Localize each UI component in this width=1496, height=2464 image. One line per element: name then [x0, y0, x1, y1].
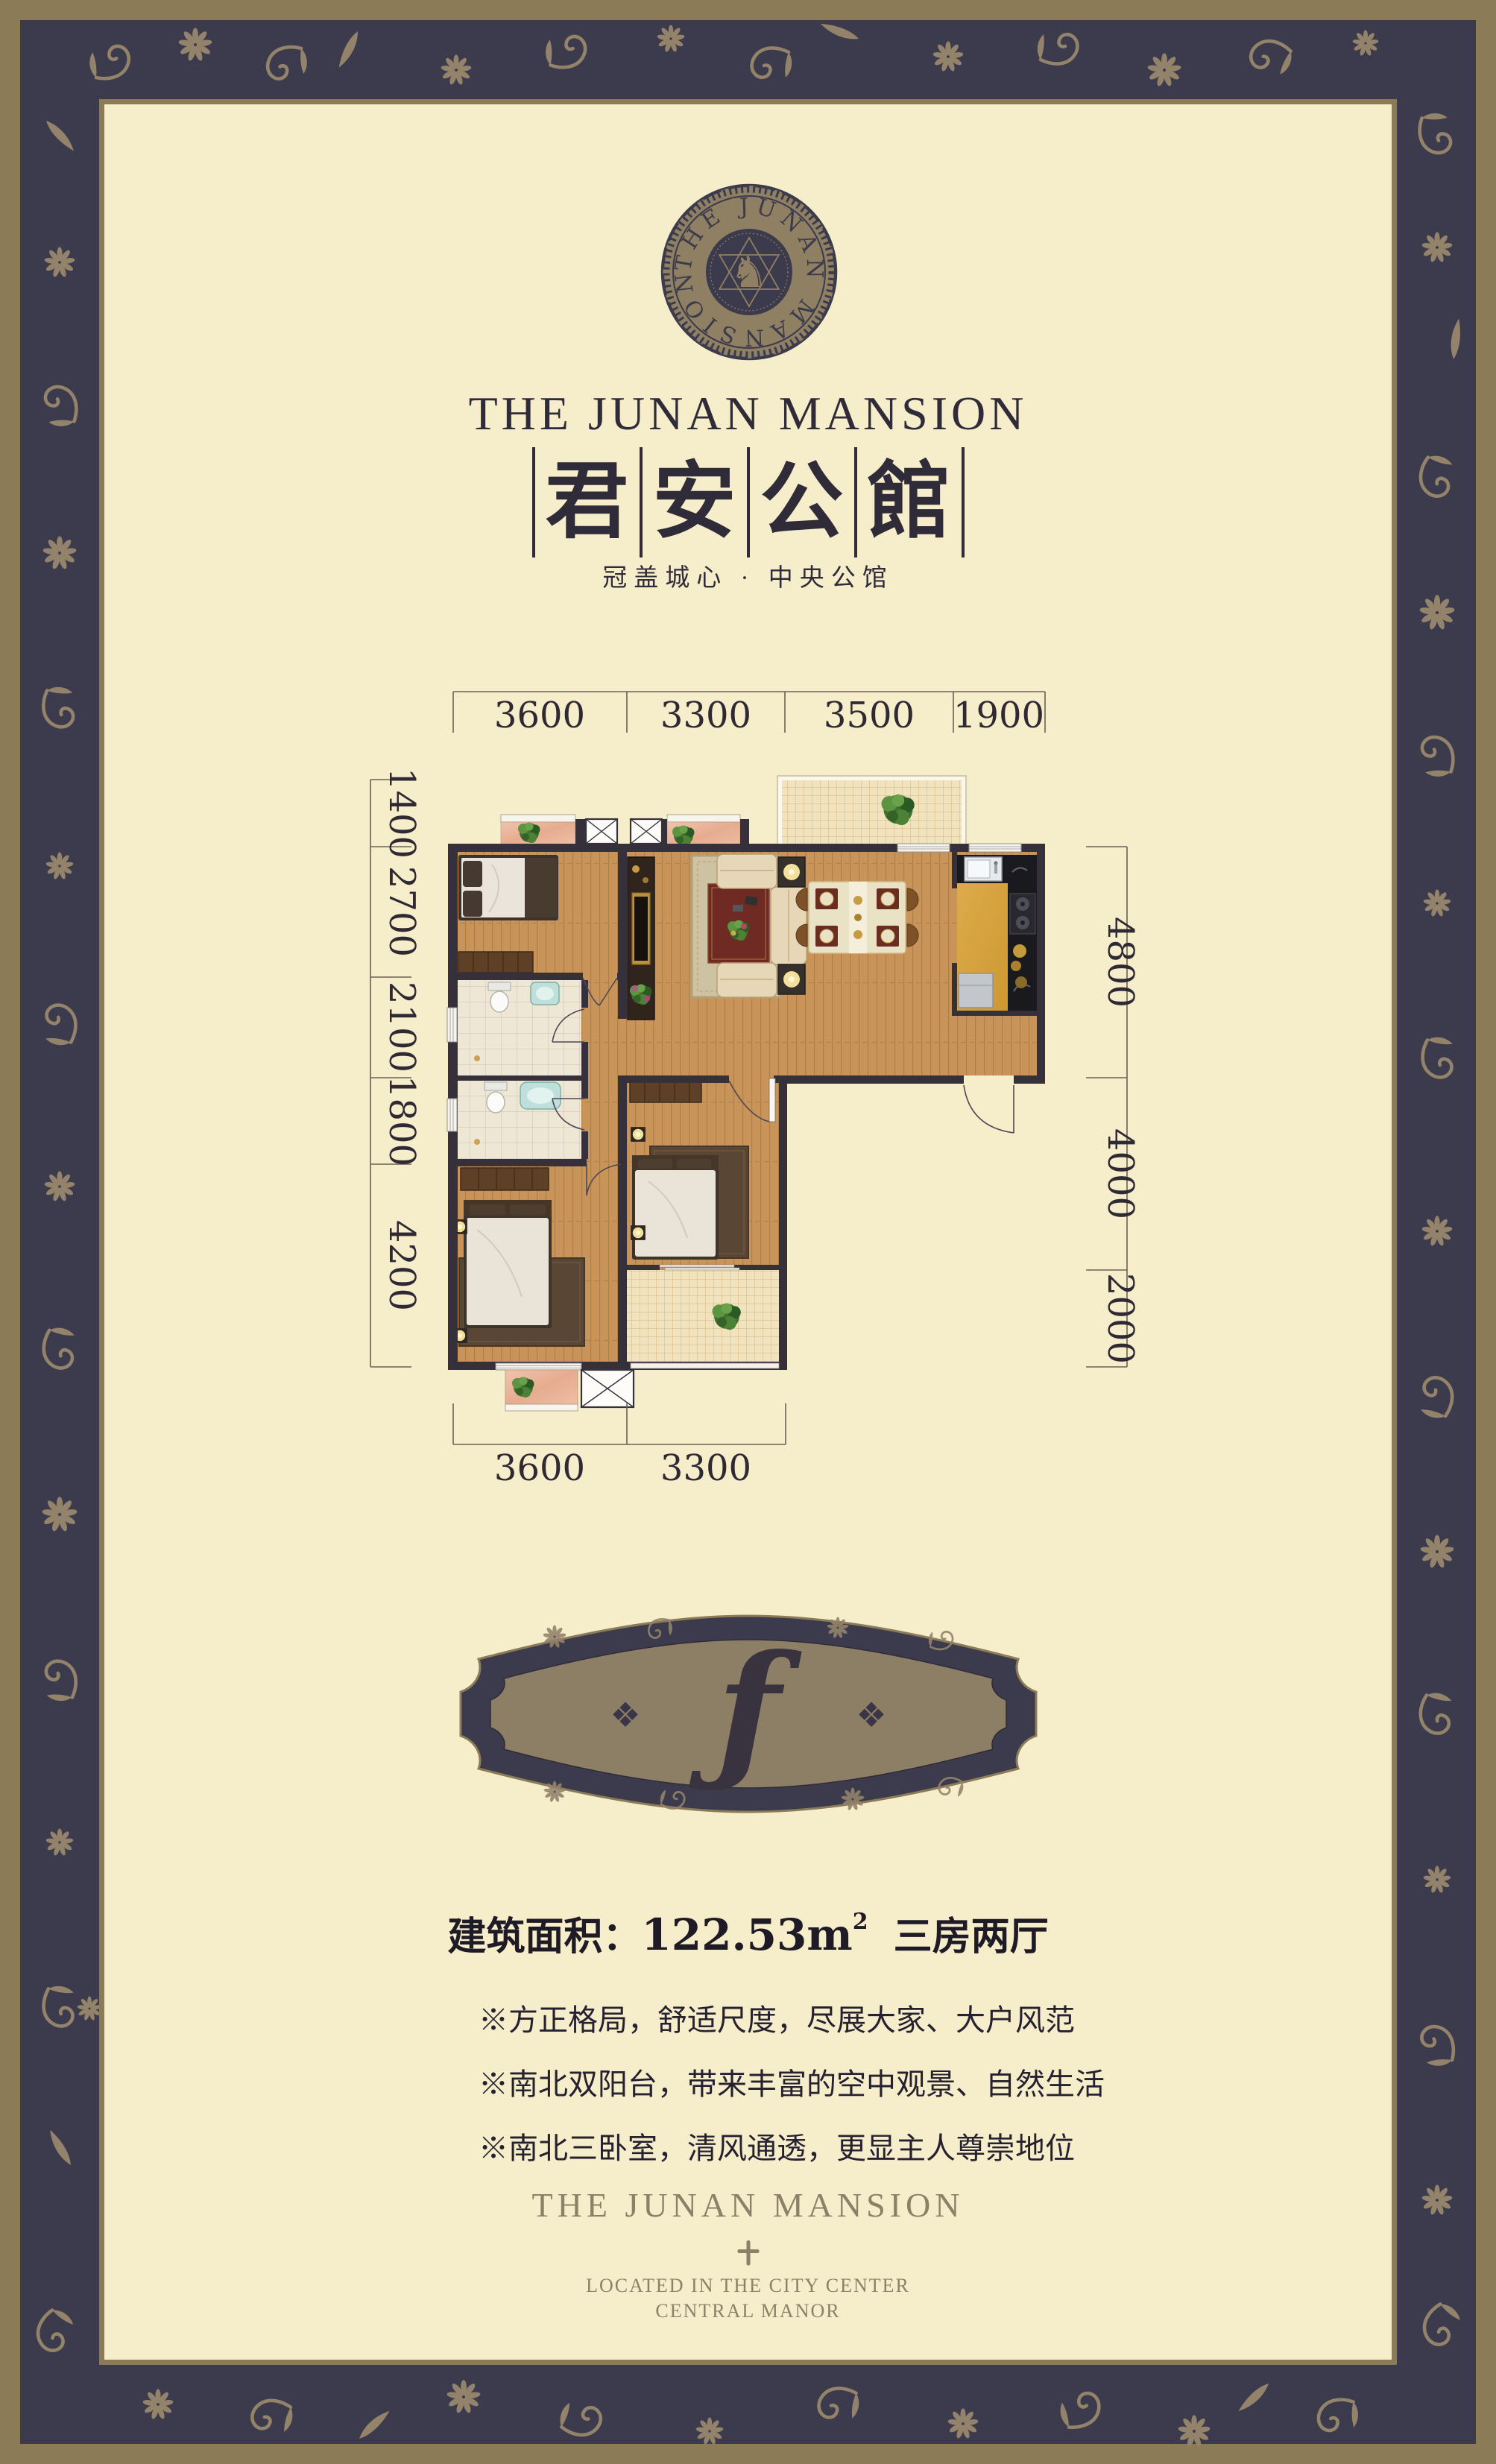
dim-label: 2000 — [1099, 1273, 1141, 1364]
horse-icon: ♞ — [730, 247, 768, 297]
rooms-label: 三房两厅 — [894, 1915, 1049, 1959]
balcony-north — [777, 776, 966, 848]
cross-icon — [737, 2240, 760, 2266]
lamp-icon — [631, 1127, 646, 1142]
unit-type-badge: ❖ ❖ ƒ — [435, 1604, 1061, 1824]
divider-bar — [962, 447, 965, 557]
divider-bar — [747, 447, 750, 557]
living-room — [628, 854, 807, 1020]
poster: THE JUNAN MANSION ♞ THE JUNAN MANSION 君 … — [0, 0, 1496, 2464]
dim-label: 3500 — [824, 695, 915, 736]
dim-label: 1800 — [381, 1075, 423, 1166]
bed — [632, 1155, 719, 1260]
dim-label: 3300 — [660, 695, 751, 736]
dim-label: 4000 — [1099, 1128, 1141, 1219]
area-label: 建筑面积： — [447, 1915, 641, 1959]
balcony-south — [627, 1270, 779, 1362]
dim-label: 4200 — [381, 1220, 423, 1311]
dim-label: 1400 — [381, 768, 423, 859]
brand-cn-char: 館 — [868, 454, 951, 551]
brand-cn-char: 公 — [760, 454, 844, 551]
brand-seal: THE JUNAN MANSION ♞ — [658, 181, 840, 363]
shaft-icon — [586, 819, 617, 844]
footer-divider — [0, 2240, 1496, 2269]
tv-cabinet — [628, 857, 654, 1020]
feature-list: ※方正格局，舒适尺度，尽展大家、大户风范 ※南北双阳台，带来丰富的空中观景、自然… — [479, 1988, 1090, 2181]
bowl-icon — [1011, 961, 1021, 971]
floor-plan: 3600 3300 3500 1900 1400 2700 2100 1800 … — [343, 663, 1178, 1513]
place-setting — [815, 926, 838, 947]
basin-icon — [531, 982, 559, 1005]
badge-ornament-icon: ❖ — [610, 1695, 640, 1735]
brand-cn-char: 君 — [546, 454, 629, 551]
balcony-south-west — [505, 1370, 634, 1411]
divider-bar — [854, 447, 857, 557]
coffee-table — [708, 884, 769, 963]
dim-label: 3600 — [494, 695, 585, 736]
area-unit-sup: 2 — [853, 1909, 868, 1935]
stove-icon — [1010, 894, 1035, 934]
window-icon — [447, 1099, 457, 1131]
wardrobe — [458, 952, 533, 973]
drain-icon — [474, 1055, 480, 1061]
brand-cn-char: 安 — [653, 454, 736, 551]
window-icon — [447, 1008, 457, 1042]
window-icon — [897, 844, 950, 852]
feature-item: ※方正格局，舒适尺度，尽展大家、大户风范 — [479, 1988, 1090, 2053]
badge-ornament-icon: ❖ — [856, 1695, 886, 1735]
footer-line2: CENTRAL MANOR — [0, 2300, 1496, 2322]
balcony-railing — [631, 1363, 779, 1368]
door-arc-icon — [964, 1085, 1014, 1133]
feature-item: ※南北三卧室，清风通透，更显主人尊崇地位 — [479, 2117, 1090, 2181]
place-setting — [877, 888, 899, 909]
dim-label: 1900 — [953, 695, 1044, 736]
side-table — [778, 964, 805, 994]
brand-title-cn: 君 安 公 館 — [0, 447, 1496, 557]
window-icon — [969, 844, 1021, 852]
bowl-icon — [1013, 944, 1026, 958]
dining-area — [796, 882, 918, 953]
bed — [464, 1200, 552, 1328]
kitchen — [957, 855, 1037, 1011]
dim-label: 2700 — [381, 866, 423, 957]
dim-label: 3300 — [660, 1447, 751, 1489]
footer-brand: THE JUNAN MANSION — [0, 2185, 1496, 2225]
window-icon — [496, 1363, 581, 1370]
shaft-icon — [581, 1370, 634, 1407]
wardrobe — [630, 1080, 701, 1102]
area-value: 122.53m — [641, 1909, 852, 1960]
feature-item: ※南北双阳台，带来丰富的空中观景、自然生活 — [479, 2053, 1090, 2117]
drain-icon — [474, 1139, 480, 1145]
dim-label: 2100 — [381, 982, 423, 1073]
area-spec: 建筑面积：122.53m2三房两厅 — [0, 1905, 1496, 1961]
dim-label: 3600 — [494, 1447, 585, 1489]
bed — [458, 855, 558, 920]
sink-icon — [965, 857, 1002, 881]
place-setting — [815, 888, 838, 909]
footer-line1: LOCATED IN THE CITY CENTER — [0, 2275, 1496, 2297]
toilet-icon — [485, 1082, 507, 1113]
toilet-icon — [488, 982, 511, 1012]
dim-label: 4800 — [1099, 917, 1141, 1008]
brand-title: THE JUNAN MANSION — [0, 386, 1496, 441]
shaft-icon — [631, 819, 662, 844]
lamp-icon — [631, 1225, 646, 1240]
fridge-icon — [959, 973, 993, 1008]
place-setting — [877, 926, 899, 947]
bowl-icon — [1015, 976, 1027, 988]
brand-tagline: 冠盖城心 · 中央公馆 — [0, 557, 1496, 593]
dining-table — [809, 882, 906, 953]
side-table — [778, 857, 805, 887]
wardrobe — [461, 1168, 549, 1190]
divider-bar — [640, 447, 643, 557]
divider-bar — [532, 447, 535, 557]
